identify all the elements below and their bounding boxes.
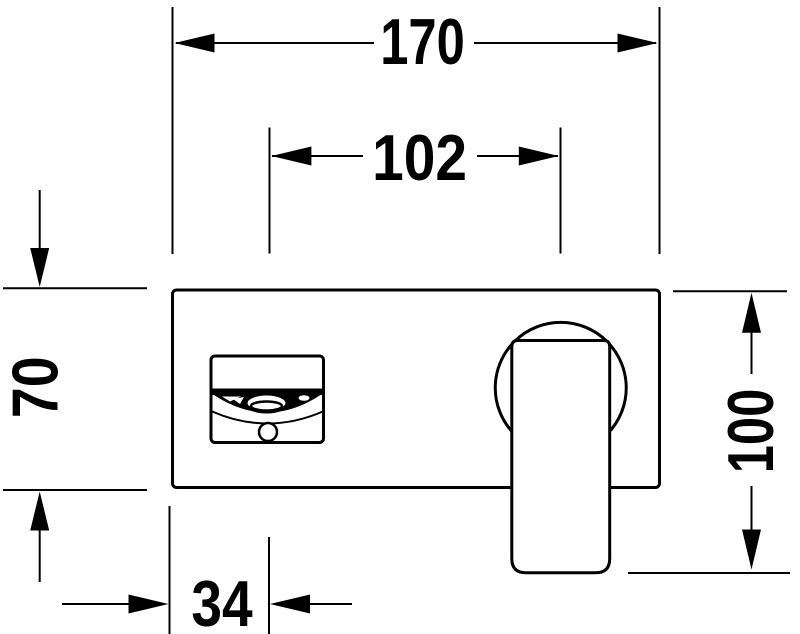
svg-text:70: 70 [0, 356, 71, 418]
svg-text:100: 100 [715, 389, 787, 474]
svg-text:34: 34 [191, 567, 253, 634]
svg-text:102: 102 [372, 121, 467, 193]
svg-text:170: 170 [380, 6, 465, 78]
